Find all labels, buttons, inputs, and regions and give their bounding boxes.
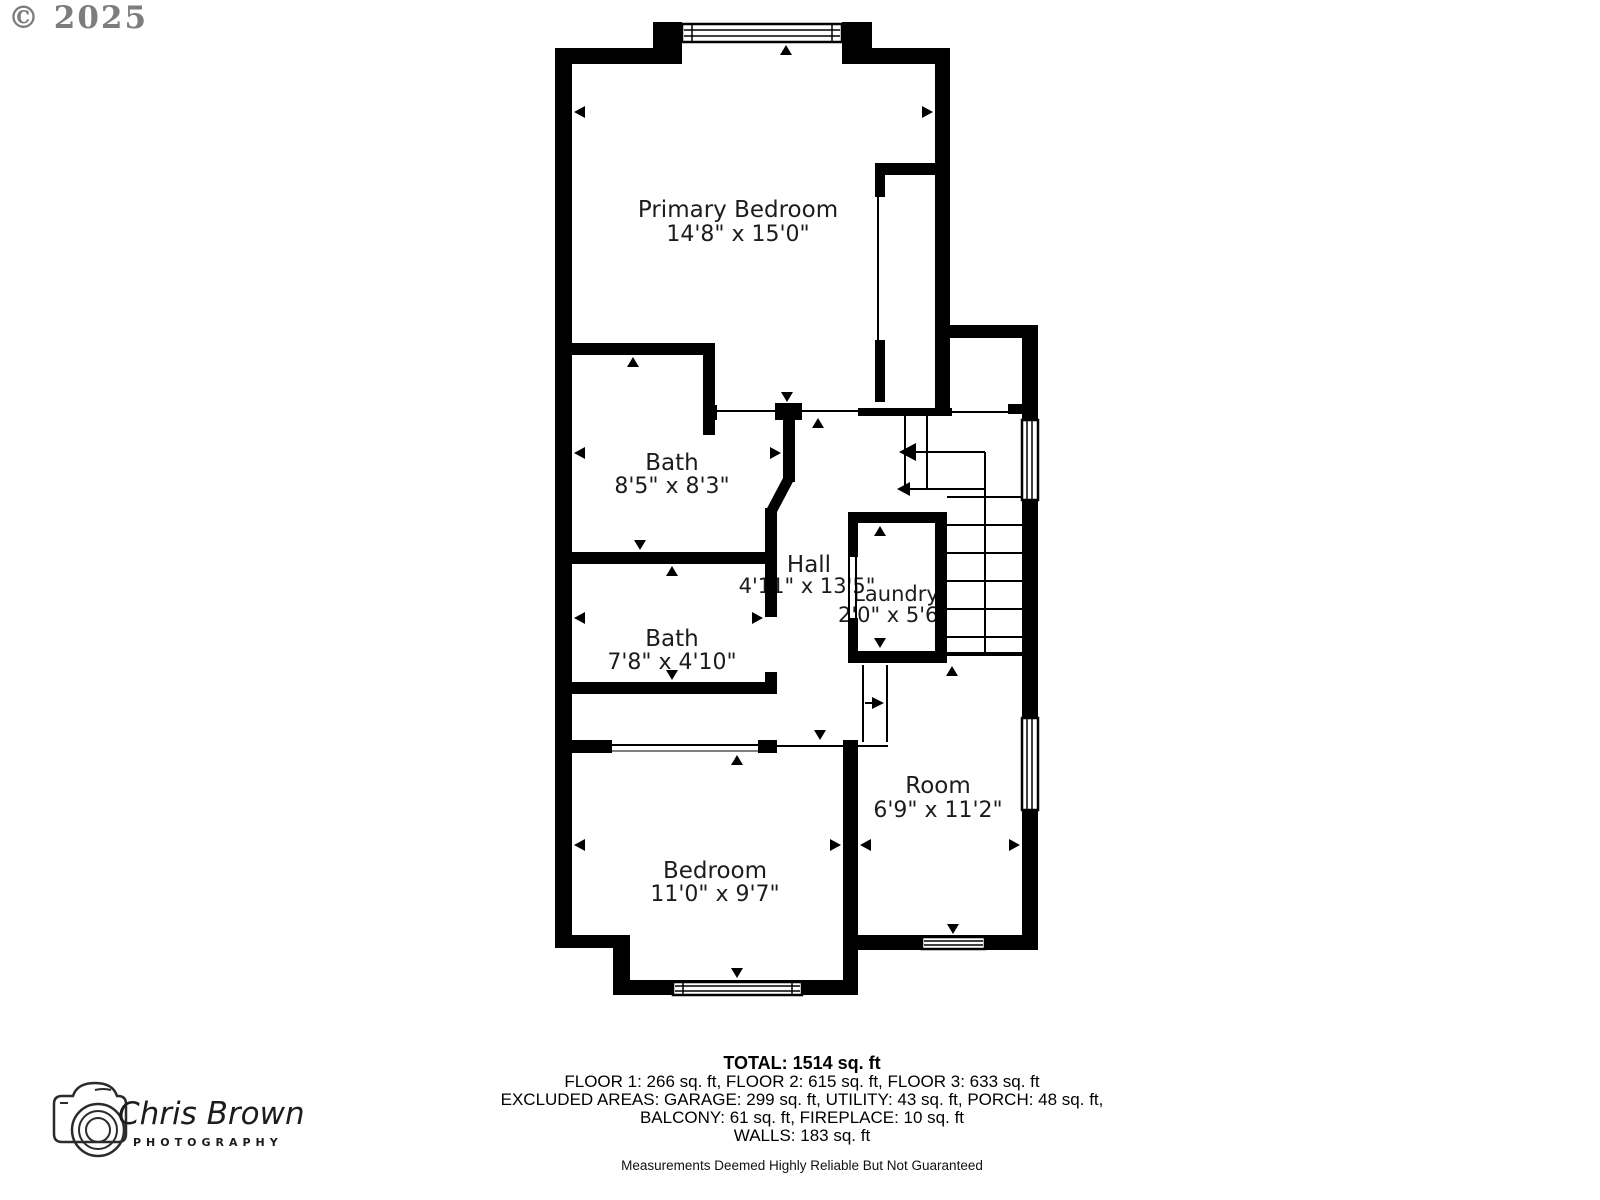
room-name: Room bbox=[905, 773, 971, 799]
bedroom-label: Bedroom 11'0" x 9'7" bbox=[650, 858, 779, 907]
stair-down-arrowhead bbox=[872, 697, 884, 709]
walls bbox=[555, 22, 1038, 995]
bath1-label: Bath 8'5" x 8'3" bbox=[614, 450, 729, 499]
stair-up-arrowhead bbox=[899, 443, 916, 461]
bedroom-dims: 11'0" x 9'7" bbox=[650, 882, 779, 907]
wall-corridor-bottom-left bbox=[572, 740, 612, 753]
wall-bath2-bottom bbox=[572, 682, 777, 694]
wall-hall-diagonal bbox=[765, 478, 795, 512]
primary-bedroom-label: Primary Bedroom 14'8" x 15'0" bbox=[638, 197, 838, 247]
window-frame bbox=[1022, 420, 1038, 500]
wall-laundry-top bbox=[848, 512, 947, 523]
wall-corridor-jamb bbox=[775, 403, 802, 420]
window-primary-bedroom bbox=[682, 24, 842, 42]
wall-right-upper bbox=[935, 48, 950, 408]
bath2-dims: 7'8" x 4'10" bbox=[607, 650, 736, 675]
wall-bedroom-room-divider bbox=[843, 740, 858, 995]
wall-bath1-right bbox=[703, 343, 715, 435]
summary-walls: WALLS: 183 sq. ft bbox=[0, 1127, 1600, 1145]
room-dims: 6'9" x 11'2" bbox=[873, 798, 1002, 823]
window-room-side bbox=[1022, 718, 1038, 810]
wall-closet-jamb-top bbox=[875, 163, 885, 197]
disclaimer: Measurements Deemed Highly Reliable But … bbox=[0, 1158, 1600, 1173]
wall-bath1-top bbox=[572, 343, 715, 355]
bath1-name: Bath bbox=[645, 450, 698, 476]
bath2-label: Bath 7'8" x 4'10" bbox=[607, 626, 736, 675]
wall-bath1-bottom bbox=[572, 552, 765, 564]
wall-bay-left bbox=[653, 22, 682, 64]
window-frame bbox=[682, 24, 842, 42]
floor-plan: Hall 4'11" x 13'5" Laundry 2'0" x 5'6" bbox=[0, 0, 1600, 1200]
summary-floors: FLOOR 1: 266 sq. ft, FLOOR 2: 615 sq. ft… bbox=[0, 1073, 1600, 1091]
wall-laundry-right bbox=[935, 512, 947, 663]
area-summary: TOTAL: 1514 sq. ft FLOOR 1: 266 sq. ft, … bbox=[0, 1054, 1600, 1145]
wall-corridor-thin bbox=[858, 408, 952, 416]
summary-total: TOTAL: 1514 sq. ft bbox=[0, 1054, 1600, 1073]
wall-hall-lower bbox=[765, 508, 777, 617]
summary-excluded-1: EXCLUDED AREAS: GARAGE: 299 sq. ft, UTIL… bbox=[0, 1091, 1600, 1109]
bath1-dims: 8'5" x 8'3" bbox=[614, 474, 729, 499]
room-label: Room 6'9" x 11'2" bbox=[873, 773, 1002, 823]
window-room-bottom bbox=[922, 937, 985, 949]
wall-top-right bbox=[842, 48, 950, 64]
stair-mid-arrowhead bbox=[897, 482, 910, 496]
primary-bedroom-name: Primary Bedroom bbox=[638, 197, 838, 223]
stair-direction-arrows bbox=[872, 443, 916, 709]
window-stairwell bbox=[1022, 420, 1038, 500]
wall-closet-jamb-bottom bbox=[875, 340, 885, 402]
wall-top-left bbox=[555, 48, 653, 64]
wall-closet-top bbox=[875, 163, 943, 175]
wall-left-outer bbox=[555, 48, 572, 948]
dimension-arrows bbox=[574, 45, 1020, 978]
primary-bedroom-dims: 14'8" x 15'0" bbox=[666, 222, 809, 247]
wall-landing-jamb bbox=[1008, 404, 1022, 414]
window-frame bbox=[1022, 718, 1038, 810]
wall-corridor-stub bbox=[703, 405, 717, 420]
bath2-name: Bath bbox=[645, 626, 698, 652]
bedroom-name: Bedroom bbox=[663, 858, 767, 884]
wall-laundry-jamb-bottom bbox=[848, 618, 858, 663]
wall-hall-upper bbox=[783, 420, 795, 482]
floor-plan-page: © 2025 Hall 4'11" x 13'5" Laundry 2'0" x… bbox=[0, 0, 1600, 1200]
wall-corridor-bottom-jamb bbox=[758, 740, 777, 753]
summary-excluded-2: BALCONY: 61 sq. ft, FIREPLACE: 10 sq. ft bbox=[0, 1109, 1600, 1127]
wall-laundry-bottom bbox=[848, 651, 947, 663]
wall-laundry-jamb-top bbox=[848, 512, 858, 557]
window-frame bbox=[673, 982, 802, 995]
window-bedroom bbox=[673, 982, 802, 995]
window-frame bbox=[922, 937, 985, 949]
